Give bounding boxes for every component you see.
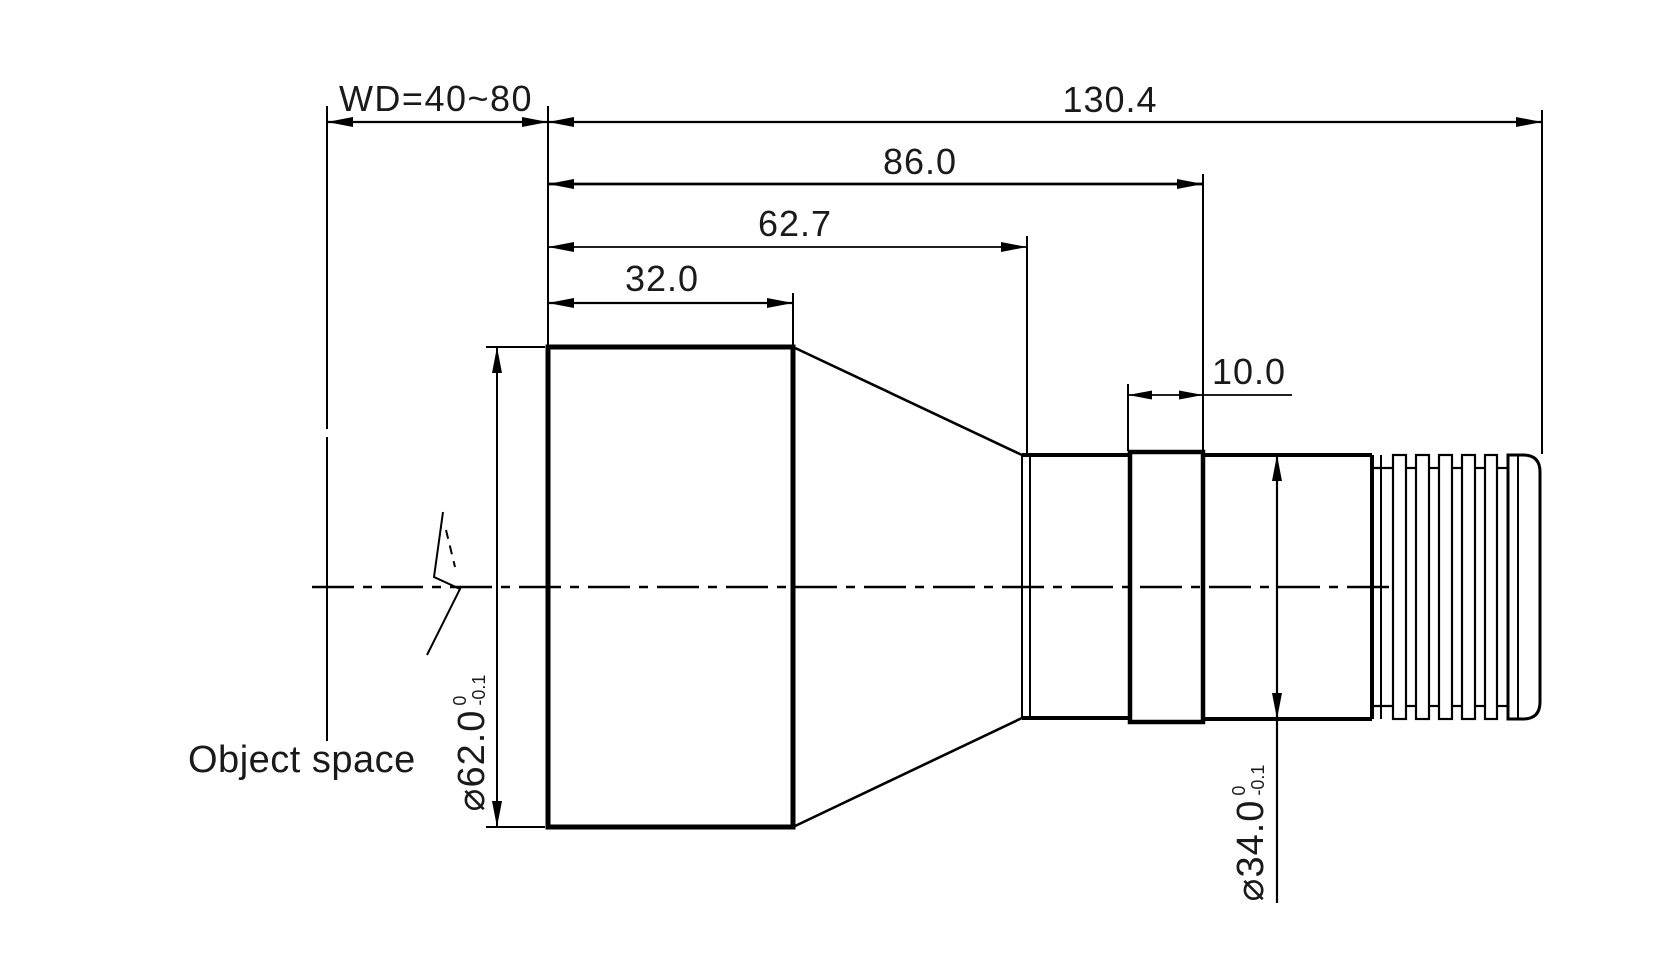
arrow-right <box>1179 391 1203 400</box>
arrow-left <box>548 117 574 127</box>
tolerance-upper: 0 <box>1230 765 1249 796</box>
rear-diameter-tolerance: 0 -0.1 <box>1230 765 1268 796</box>
front-diameter-value: ⌀62.0 <box>453 710 491 812</box>
arrow-up <box>1272 455 1282 481</box>
break-zigzag <box>427 512 460 655</box>
arrow-right <box>1001 242 1027 252</box>
arrow-up <box>492 347 502 373</box>
arrow-left <box>548 179 574 189</box>
thread-crest <box>1485 455 1497 719</box>
arrow-right <box>767 298 793 308</box>
thread-crest <box>1393 455 1406 719</box>
body-length-label: 86.0 <box>883 144 957 180</box>
cone-length-label: 62.7 <box>758 206 832 242</box>
arrow-left <box>1128 391 1152 400</box>
extension-lines <box>327 106 1542 741</box>
working-distance-label: WD=40~80 <box>339 81 533 117</box>
thread-crest <box>1439 455 1452 719</box>
object-space-label: Object space <box>188 741 416 779</box>
front-diameter-label: ⌀62.0 0 -0.1 <box>453 675 491 812</box>
front-diameter-tolerance: 0 -0.1 <box>451 675 489 706</box>
front-barrel-length-label: 32.0 <box>625 261 699 297</box>
rear-diameter-label: ⌀34.0 0 -0.1 <box>1232 765 1270 902</box>
lens-drawing-canvas <box>0 0 1654 960</box>
arrow-right <box>1177 179 1203 189</box>
lens-dimension-drawing: WD=40~80 130.4 86.0 62.7 32.0 10.0 ⌀62.0… <box>0 0 1654 960</box>
cone-taper-bottom <box>793 718 1022 827</box>
rear-diameter-value: ⌀34.0 <box>1232 800 1270 902</box>
axis-break-squiggle <box>427 512 460 655</box>
thread-crest <box>1462 455 1475 719</box>
break-zigzag-dash <box>446 530 455 567</box>
arrow-left <box>548 242 574 252</box>
arrow-down <box>1272 693 1282 719</box>
arrow-left <box>548 298 574 308</box>
rear-end-cap <box>1508 455 1540 719</box>
tolerance-lower: -0.1 <box>470 675 489 706</box>
cone-taper-top <box>793 347 1022 455</box>
end-cap-outline <box>1508 455 1540 719</box>
ring-width-label: 10.0 <box>1212 354 1286 390</box>
overall-length-label: 130.4 <box>1062 82 1157 118</box>
arrow-right <box>1516 117 1542 127</box>
thread-crest <box>1416 455 1429 719</box>
thread-section <box>1372 455 1508 719</box>
tolerance-upper: 0 <box>451 675 470 706</box>
arrow-down <box>492 801 502 827</box>
tolerance-lower: -0.1 <box>1249 765 1268 796</box>
dimension-lines <box>327 122 1542 903</box>
